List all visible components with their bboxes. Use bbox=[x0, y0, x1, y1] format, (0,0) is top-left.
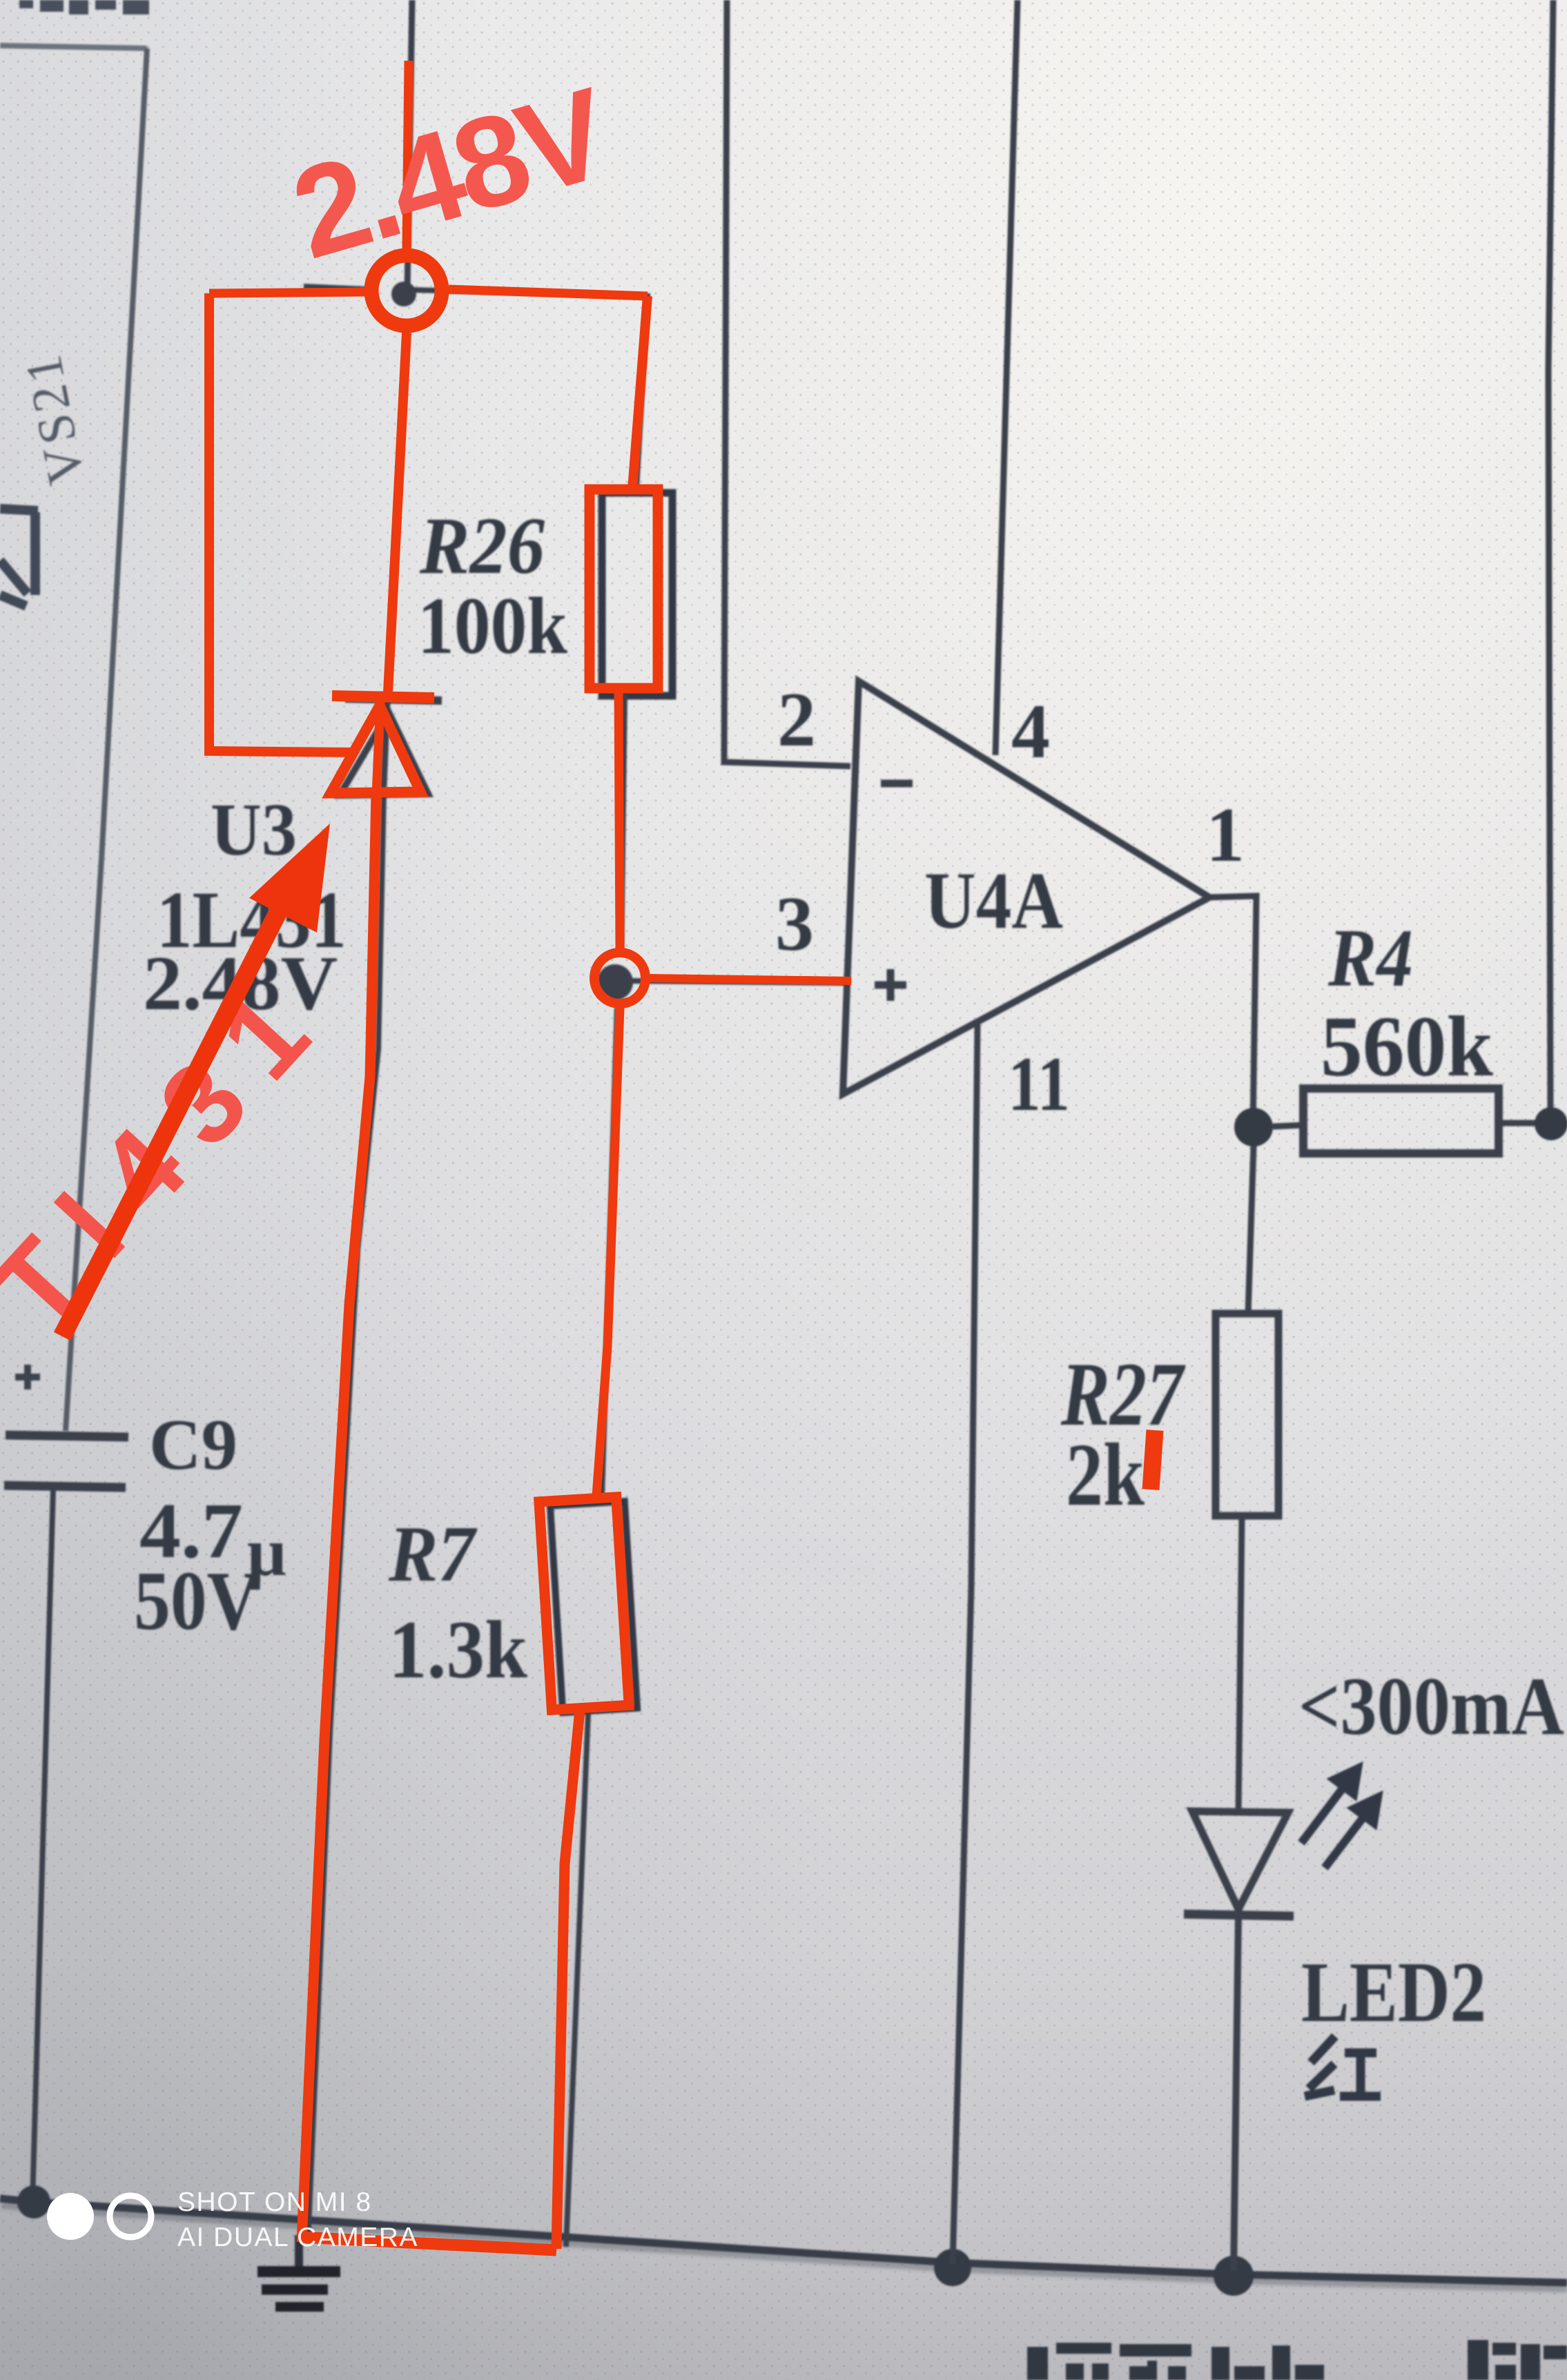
svg-text:50V: 50V bbox=[134, 1554, 260, 1648]
svg-text:<300mA: <300mA bbox=[1298, 1660, 1564, 1752]
svg-text:R7: R7 bbox=[388, 1510, 478, 1598]
svg-text:LED2: LED2 bbox=[1301, 1945, 1486, 2040]
svg-text:560k: 560k bbox=[1321, 999, 1493, 1095]
svg-text:SHOT ON MI 8: SHOT ON MI 8 bbox=[177, 2187, 372, 2217]
svg-text:2: 2 bbox=[777, 677, 816, 763]
svg-text:1: 1 bbox=[1206, 792, 1245, 878]
svg-text:3: 3 bbox=[775, 881, 814, 967]
svg-text:U3: U3 bbox=[211, 789, 297, 871]
svg-text:4: 4 bbox=[1011, 689, 1050, 774]
svg-text:AI DUAL CAMERA: AI DUAL CAMERA bbox=[177, 2223, 418, 2252]
svg-text:R26: R26 bbox=[419, 500, 545, 591]
svg-text:100k: 100k bbox=[418, 581, 567, 671]
svg-text:1.3k: 1.3k bbox=[389, 1603, 527, 1695]
svg-text:U4A: U4A bbox=[924, 855, 1063, 946]
svg-text:2k: 2k bbox=[1066, 1425, 1145, 1525]
svg-text:R4: R4 bbox=[1327, 912, 1413, 1004]
svg-text:C9: C9 bbox=[149, 1404, 237, 1485]
svg-text:11: 11 bbox=[1008, 1042, 1070, 1127]
